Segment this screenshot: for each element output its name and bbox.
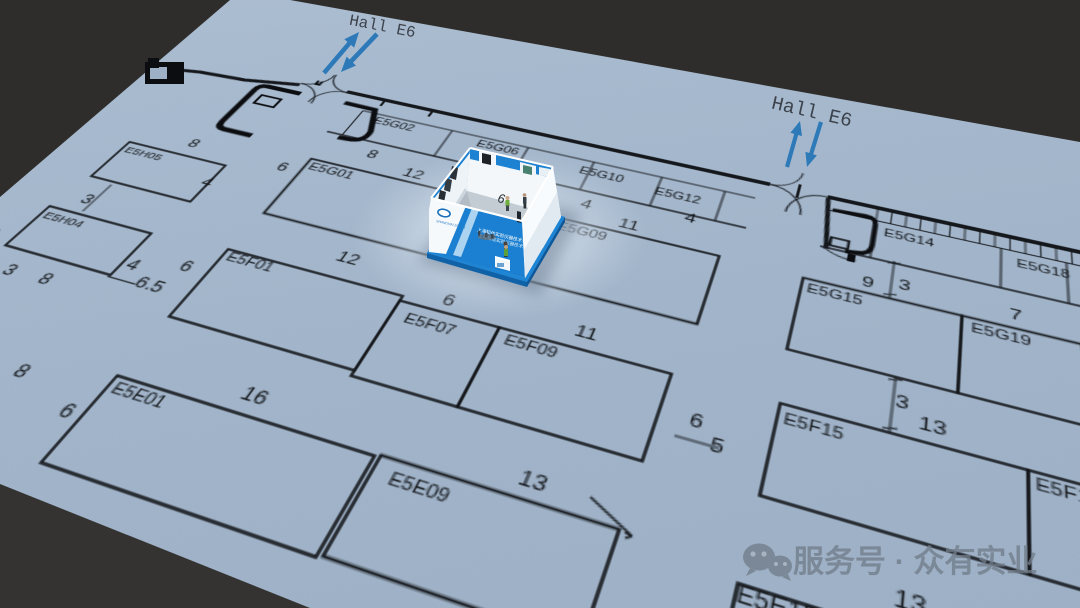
svg-text:服务号 · 众有实业: 服务号 · 众有实业 [793,544,1038,579]
